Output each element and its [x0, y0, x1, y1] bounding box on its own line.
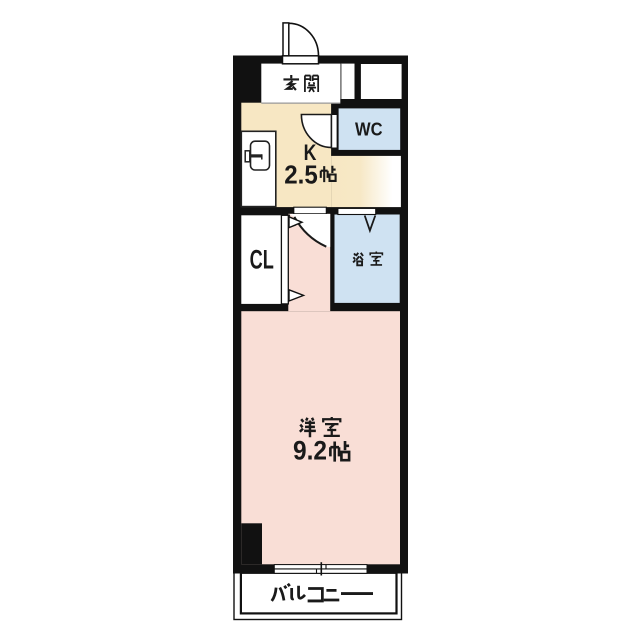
svg-text:WC: WC: [355, 119, 383, 140]
svg-text:CL: CL: [250, 245, 274, 275]
svg-text:2.5: 2.5: [284, 160, 318, 190]
svg-text:9.2: 9.2: [293, 436, 327, 466]
